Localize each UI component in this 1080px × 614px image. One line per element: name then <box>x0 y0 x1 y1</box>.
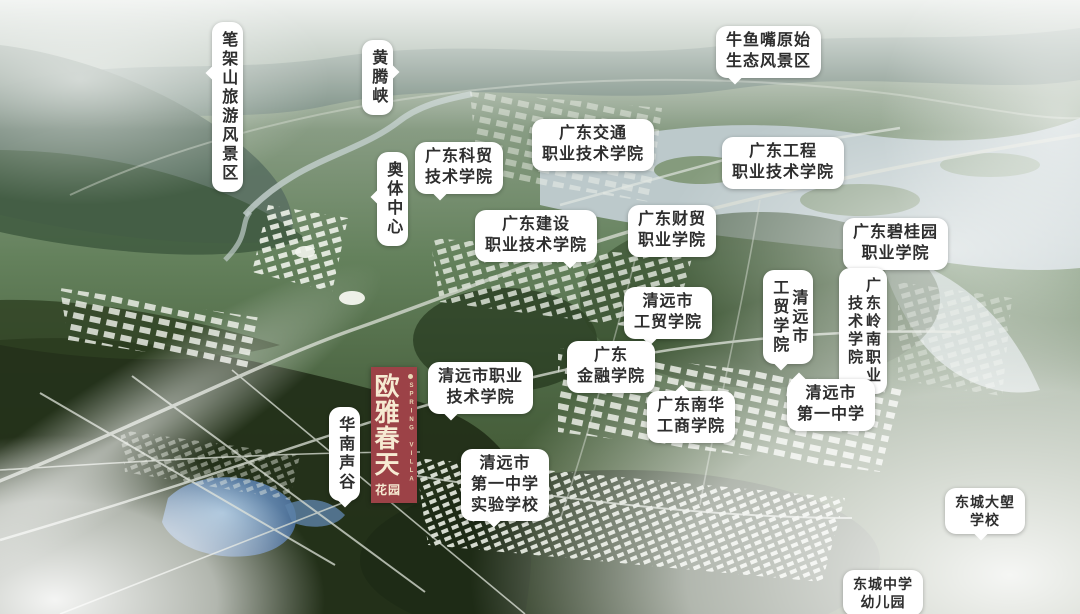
map-label-text: 笔架山旅游风景区 <box>219 31 236 183</box>
map-label-text: 清远市职业 技术学院 <box>438 368 523 406</box>
map-label-text: 广东 金融学院 <box>577 347 645 385</box>
map-label-niuyuzui-eco-scenic-area: 牛鱼嘴原始 生态风景区 <box>716 26 821 78</box>
map-label-no1-middle-experimental: 清远市 第一中学 实验学校 <box>461 449 549 521</box>
map-label-text: 广东科贸 技术学院 <box>425 148 493 186</box>
map-label-huanan-shenggu: 华南声谷 <box>329 407 360 501</box>
map-label-text: 黄腾峡 <box>369 49 386 106</box>
map-label-dongcheng-kindergarten: 东城中学 幼儿园 <box>843 570 923 614</box>
label-tail-pointer <box>772 354 789 371</box>
logo-project-name: 欧雅春天 <box>372 373 397 477</box>
logo-project-suffix: 花园 <box>375 481 401 498</box>
label-tail-pointer <box>336 491 353 508</box>
map-label-text: 奥体中心 <box>384 161 401 237</box>
map-label-text: 广东建设 职业技术学院 <box>485 216 587 254</box>
map-label-text: 东城中学 幼儿园 <box>853 576 913 610</box>
map-label-text: 牛鱼嘴原始 生态风景区 <box>726 32 811 70</box>
map-label-gd-lingnan-polytechnic: 广东岭南职业 技术学院 <box>839 268 887 394</box>
map-label-gd-nanhua-business-college: 广东南华 工商学院 <box>647 391 735 443</box>
map-label-gd-jianshe-polytechnic: 广东建设 职业技术学院 <box>475 210 597 262</box>
map-label-text: 广东岭南职业 技术学院 <box>846 277 881 385</box>
logo-english-name: SPRING VILLA <box>409 383 415 485</box>
map-label-gd-jiaotong-polytechnic: 广东交通 职业技术学院 <box>532 119 654 171</box>
map-label-text: 清远市 第一中学 <box>797 385 865 423</box>
map-label-text: 广东碧桂园 职业学院 <box>853 224 938 262</box>
map-label-huangtengxia: 黄腾峡 <box>362 40 393 115</box>
map-label-text: 华南声谷 <box>336 416 353 492</box>
map-label-bijiashan-scenic-area: 笔架山旅游风景区 <box>212 22 243 192</box>
map-label-gd-biguiyuan-college: 广东碧桂园 职业学院 <box>843 218 948 270</box>
map-label-text: 清远市 工贸学院 <box>770 279 806 355</box>
map-label-text: 广东财贸 职业学院 <box>638 211 706 249</box>
map-label-text: 清远市 工贸学院 <box>634 293 702 331</box>
aerial-masterplan-map: 笔架山旅游风景区黄腾峡牛鱼嘴原始 生态风景区广东科贸 技术学院广东交通 职业技术… <box>0 0 1080 614</box>
map-label-text: 广东南华 工商学院 <box>657 397 725 435</box>
map-label-gd-keymao-tech-college: 广东科贸 技术学院 <box>415 142 503 194</box>
map-label-gd-gongcheng-polytechnic: 广东工程 职业技术学院 <box>722 137 844 189</box>
map-label-gd-caimao-college: 广东财贸 职业学院 <box>628 205 716 257</box>
map-label-qingyuan-gongmao-college: 清远市 工贸学院 <box>624 287 712 339</box>
map-label-qingyuan-gongmao-college-2: 清远市 工贸学院 <box>763 270 813 364</box>
map-label-text: 广东交通 职业技术学院 <box>542 125 644 163</box>
map-label-gd-finance-college: 广东 金融学院 <box>567 341 655 393</box>
logo-dot-icon <box>408 374 413 379</box>
map-labels-layer: 笔架山旅游风景区黄腾峡牛鱼嘴原始 生态风景区广东科贸 技术学院广东交通 职业技术… <box>0 0 1080 614</box>
map-label-dongcheng-dalang-school: 东城大塱 学校 <box>945 488 1025 534</box>
map-label-qingyuan-polytechnic: 清远市职业 技术学院 <box>428 362 533 414</box>
map-label-aoti-center: 奥体中心 <box>377 152 408 246</box>
map-label-text: 东城大塱 学校 <box>955 494 1015 528</box>
map-label-text: 广东工程 职业技术学院 <box>732 143 834 181</box>
project-logo-banner: SPRING VILLA 欧雅春天 花园 <box>371 367 417 503</box>
map-label-text: 清远市 第一中学 实验学校 <box>471 455 539 514</box>
map-label-qingyuan-no1-middle-school: 清远市 第一中学 <box>787 379 875 431</box>
